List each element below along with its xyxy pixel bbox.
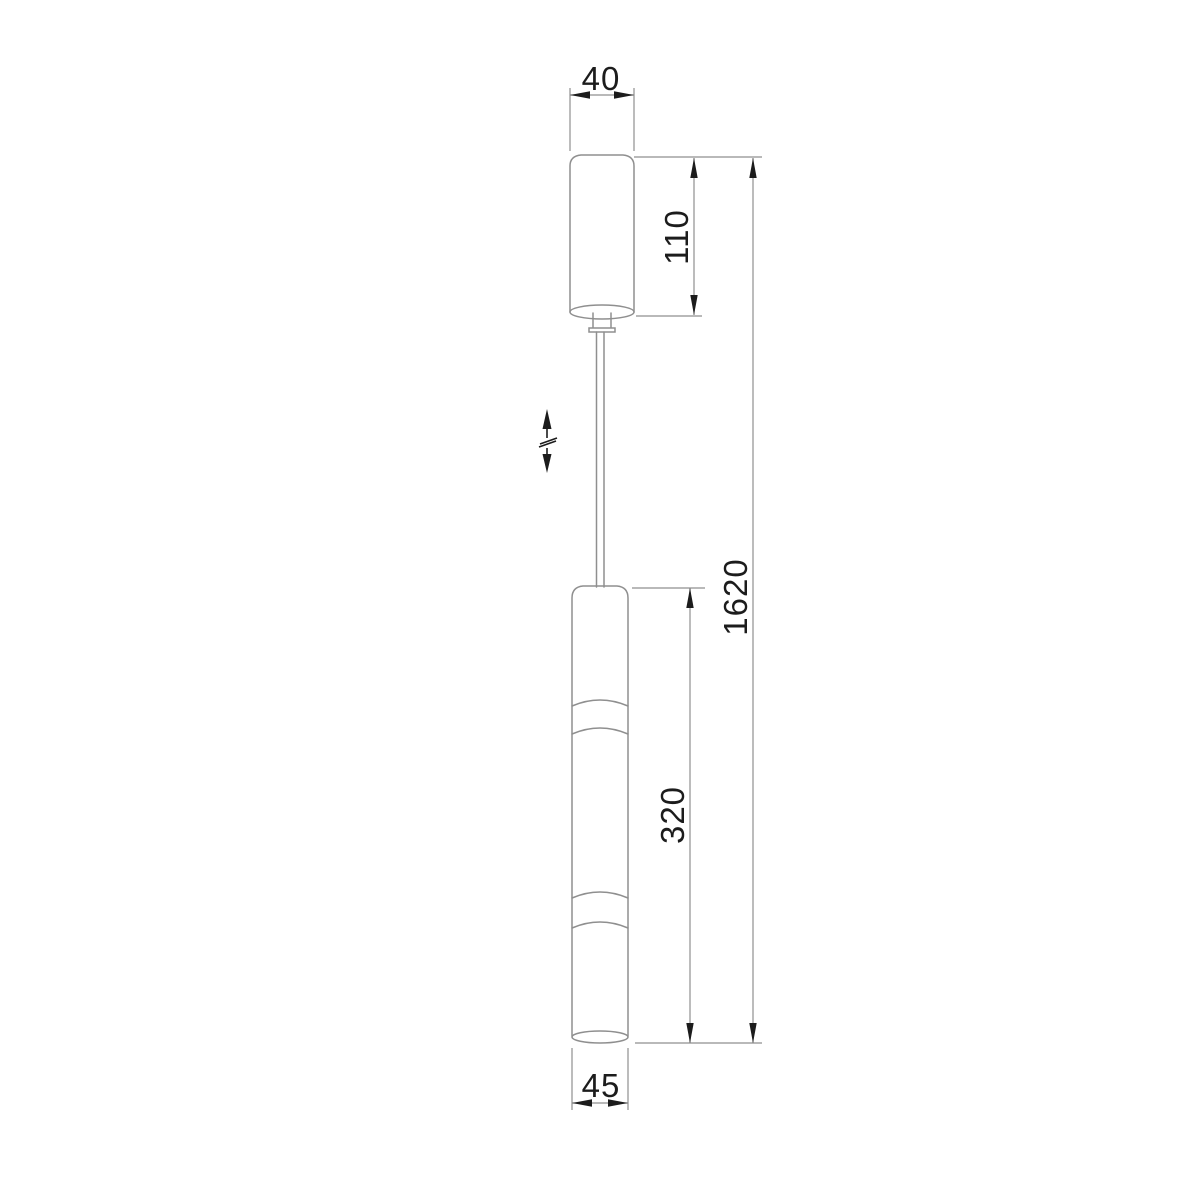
canopy-bottom-ellipse [570,305,634,319]
dim-label-canopy-height: 110 [658,209,695,265]
dimension-body-length: 320 [654,588,694,1043]
adjust-arrow-up-icon [543,409,552,429]
arrow-up-icon [749,158,756,178]
dim-label-body-length: 320 [654,786,691,844]
body-bottom-ellipse [572,1031,628,1043]
dimension-body-diameter: 45 [572,1067,628,1107]
arrow-down-icon [749,1023,756,1043]
body-ring-arc-3 [572,892,628,898]
dim-label-total-height: 1620 [717,558,754,635]
arrow-up-icon [686,588,693,608]
adjust-break-slash-icon [539,438,557,447]
dimension-canopy-width: 40 [570,60,634,99]
dimension-canopy-height: 110 [658,158,698,315]
drawing-canvas: 40 110 1620 320 45 [0,0,1200,1200]
arrow-down-icon [690,295,697,315]
adjust-arrow-down-icon [543,454,552,473]
arrow-up-icon [690,158,697,178]
canopy-outline [570,155,634,312]
body-ring-arc-1 [572,700,628,706]
cord-grip [589,313,615,332]
dim-label-body-diameter: 45 [582,1067,621,1104]
height-adjustment-symbol [539,409,557,473]
ceiling-canopy [570,155,634,332]
dim-label-canopy-width: 40 [582,60,621,97]
lamp-body [572,586,628,1043]
body-ring-arc-2 [572,728,628,734]
body-outline [572,586,628,1036]
body-ring-arc-4 [572,922,628,928]
pendant-light-technical-drawing: 40 110 1620 320 45 [0,0,1200,1200]
dimension-total-height: 1620 [717,158,757,1043]
arrow-down-icon [686,1023,693,1043]
suspension-cable [597,332,605,587]
